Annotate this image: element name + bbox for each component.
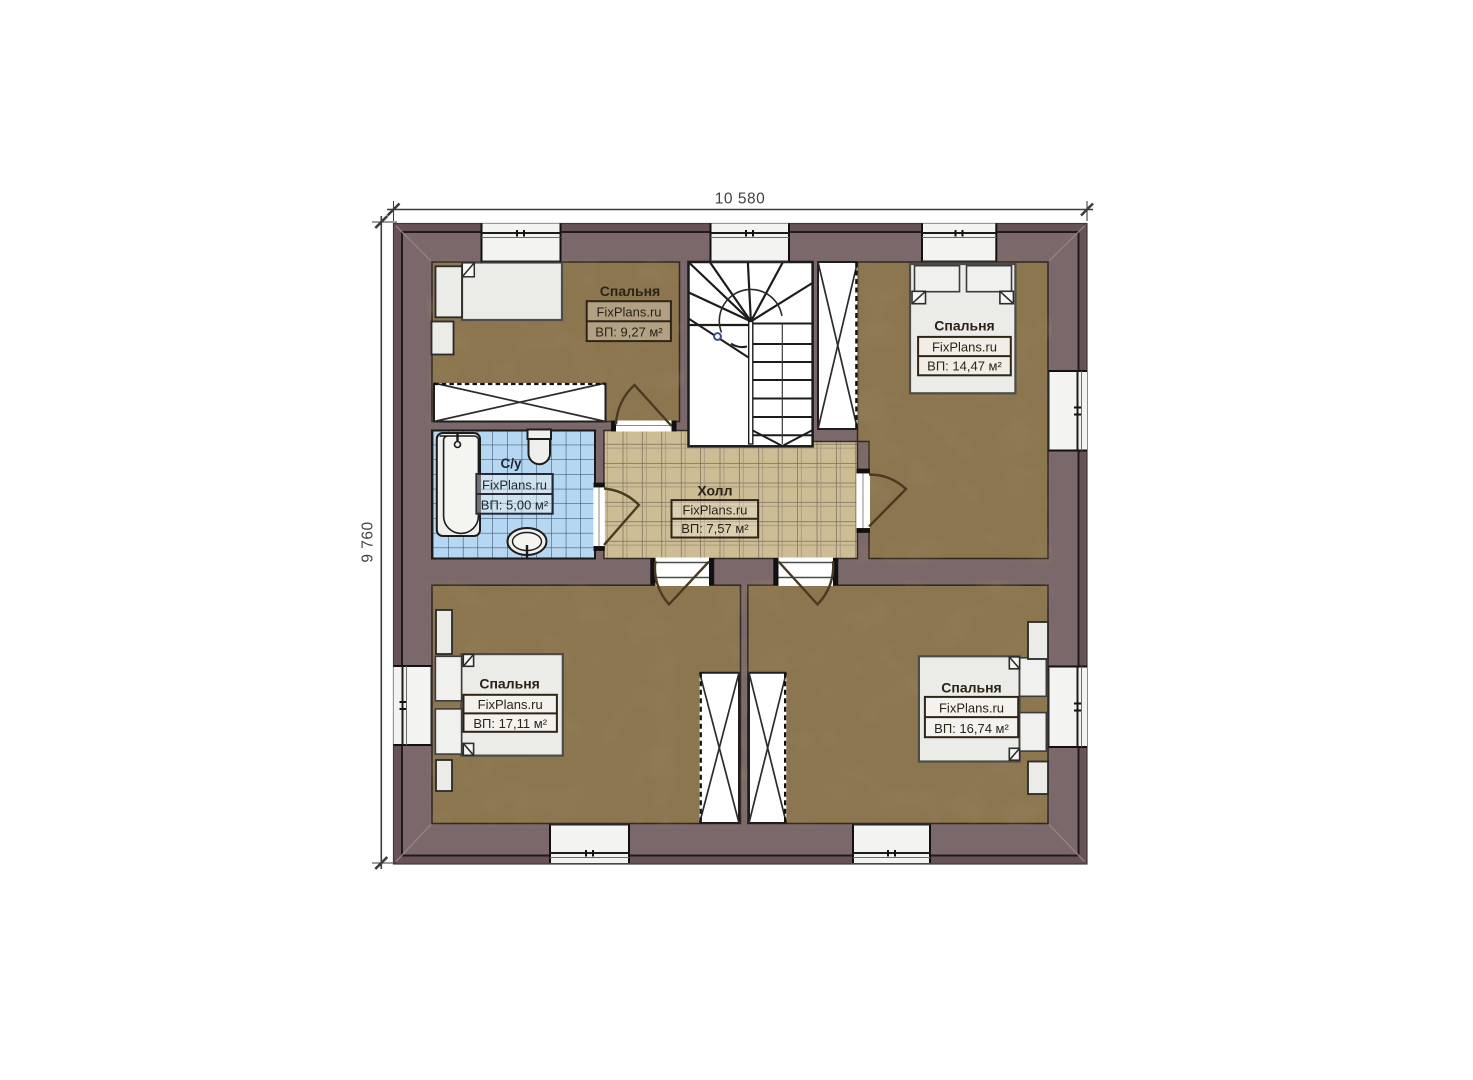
svg-text:FixPlans.ru: FixPlans.ru — [478, 697, 543, 712]
svg-text:9 760: 9 760 — [360, 521, 377, 562]
svg-text:ВП: 16,74 м²: ВП: 16,74 м² — [934, 721, 1009, 736]
svg-text:ВП: 9,27 м²: ВП: 9,27 м² — [595, 325, 663, 340]
svg-text:С/у: С/у — [500, 456, 522, 471]
svg-text:FixPlans.ru: FixPlans.ru — [482, 478, 547, 493]
svg-text:FixPlans.ru: FixPlans.ru — [596, 305, 661, 320]
svg-text:Спальня: Спальня — [600, 283, 660, 299]
svg-text:ВП: 5,00 м²: ВП: 5,00 м² — [481, 497, 549, 512]
svg-text:FixPlans.ru: FixPlans.ru — [939, 701, 1004, 716]
svg-text:Спальня: Спальня — [941, 680, 1001, 696]
svg-text:ВП: 14,47 м²: ВП: 14,47 м² — [927, 359, 1002, 374]
svg-text:Спальня: Спальня — [934, 318, 994, 334]
svg-text:Холл: Холл — [697, 483, 732, 499]
svg-text:FixPlans.ru: FixPlans.ru — [932, 340, 997, 355]
svg-text:ВП: 17,11 м²: ВП: 17,11 м² — [473, 716, 547, 731]
svg-text:Спальня: Спальня — [479, 676, 539, 692]
svg-text:10 580: 10 580 — [715, 191, 765, 208]
svg-text:FixPlans.ru: FixPlans.ru — [682, 502, 747, 517]
svg-text:ВП: 7,57 м²: ВП: 7,57 м² — [681, 521, 749, 536]
